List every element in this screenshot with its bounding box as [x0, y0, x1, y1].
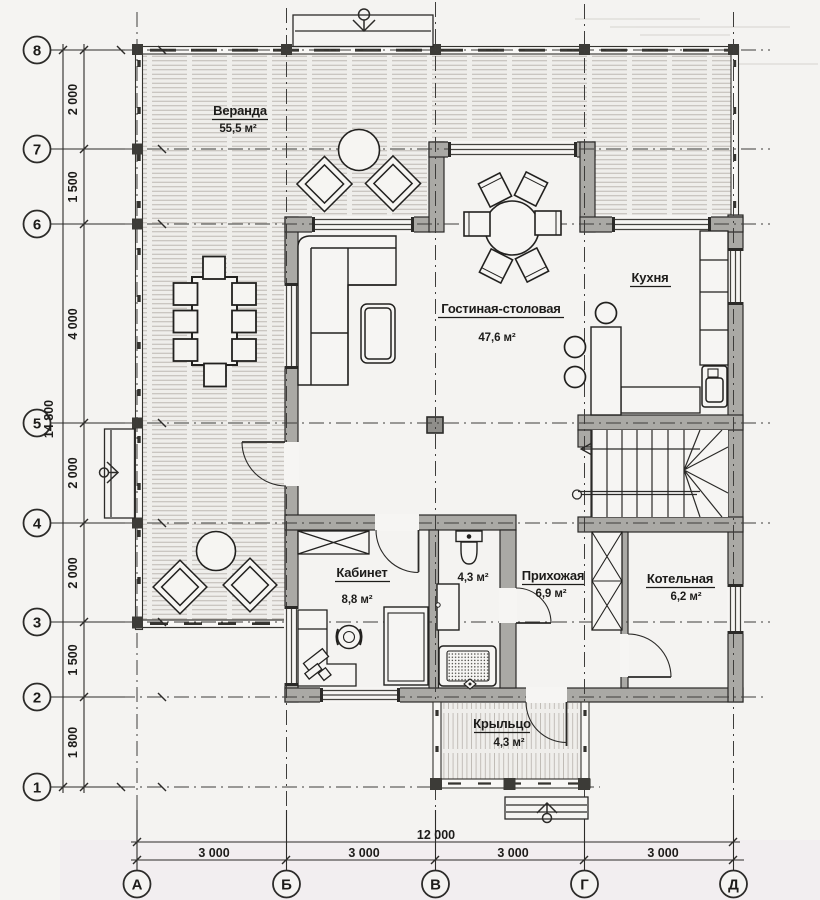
svg-text:Кабинет: Кабинет: [336, 565, 387, 580]
svg-text:8: 8: [33, 43, 41, 60]
svg-text:1 500: 1 500: [66, 644, 80, 675]
svg-text:4: 4: [33, 516, 42, 533]
svg-text:14 800: 14 800: [42, 400, 56, 438]
svg-text:3 000: 3 000: [497, 846, 528, 860]
svg-text:7: 7: [33, 142, 41, 159]
svg-text:55,5 м²: 55,5 м²: [219, 123, 256, 135]
svg-text:4,3 м²: 4,3 м²: [494, 737, 525, 749]
svg-text:6,9 м²: 6,9 м²: [536, 588, 567, 600]
svg-text:4 000: 4 000: [66, 308, 80, 339]
svg-text:В: В: [430, 877, 441, 894]
svg-text:3 000: 3 000: [348, 846, 379, 860]
svg-text:Кухня: Кухня: [632, 270, 669, 285]
svg-text:2 000: 2 000: [66, 84, 80, 115]
svg-text:Веранда: Веранда: [213, 103, 268, 118]
svg-text:3 000: 3 000: [198, 846, 229, 860]
svg-text:1 500: 1 500: [66, 171, 80, 202]
svg-text:5: 5: [33, 416, 41, 433]
svg-text:Гостиная-столовая: Гостиная-столовая: [441, 301, 560, 316]
svg-text:1 800: 1 800: [66, 727, 80, 758]
svg-text:12 000: 12 000: [417, 828, 455, 842]
svg-text:2 000: 2 000: [66, 557, 80, 588]
svg-text:Г: Г: [580, 877, 589, 894]
svg-text:2: 2: [33, 690, 41, 707]
svg-text:3 000: 3 000: [647, 846, 678, 860]
svg-text:2 000: 2 000: [66, 457, 80, 488]
svg-text:Д: Д: [728, 877, 739, 894]
svg-text:Крыльцо: Крыльцо: [473, 716, 531, 731]
svg-text:1: 1: [33, 780, 41, 797]
svg-text:6,2 м²: 6,2 м²: [671, 591, 702, 603]
svg-text:Прихожая: Прихожая: [522, 568, 585, 583]
svg-text:Котельная: Котельная: [647, 571, 713, 586]
svg-text:47,6 м²: 47,6 м²: [478, 332, 515, 344]
svg-text:Б: Б: [281, 877, 292, 894]
svg-text:4,3 м²: 4,3 м²: [458, 572, 489, 584]
svg-text:А: А: [132, 877, 143, 894]
svg-text:3: 3: [33, 615, 41, 632]
svg-text:6: 6: [33, 217, 41, 234]
svg-text:8,8 м²: 8,8 м²: [342, 594, 373, 606]
